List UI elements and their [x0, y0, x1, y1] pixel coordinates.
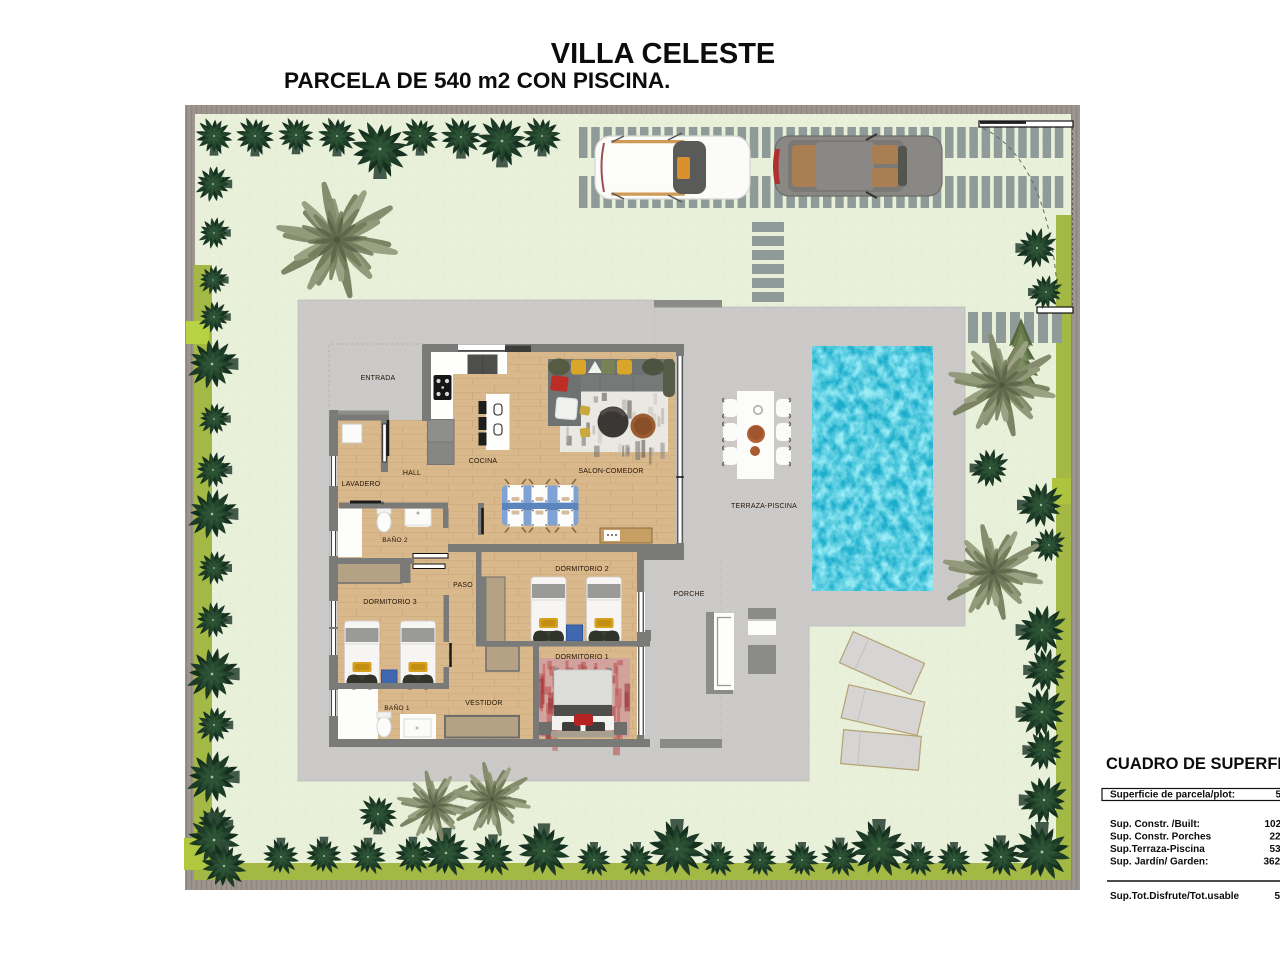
- svg-text:Superficie de parcela/plot:: Superficie de parcela/plot:: [1110, 790, 1235, 801]
- svg-text:PORCHE: PORCHE: [673, 591, 704, 598]
- svg-text:540,00 m2: 540,00 m2: [1276, 790, 1280, 801]
- svg-text:PASO: PASO: [453, 582, 473, 589]
- svg-text:HALL: HALL: [403, 470, 421, 477]
- svg-text:SALON-COMEDOR: SALON-COMEDOR: [578, 468, 643, 475]
- svg-text:ENTRADA: ENTRADA: [361, 375, 396, 382]
- svg-text:539,95 m2: 539,95 m2: [1275, 891, 1280, 902]
- svg-text:Sup. Constr. Porches: Sup. Constr. Porches: [1110, 832, 1212, 843]
- svg-text:Sup.Terraza-Piscina: Sup.Terraza-Piscina: [1110, 844, 1205, 855]
- svg-text:102,75 m2: 102,75 m2: [1265, 819, 1280, 830]
- svg-text:53,00 m2: 53,00 m2: [1270, 844, 1280, 855]
- svg-text:TERRAZA-PISCINA: TERRAZA-PISCINA: [731, 503, 797, 510]
- svg-text:PARCELA DE 540 m2 CON PISCINA.: PARCELA DE 540 m2 CON PISCINA.: [284, 68, 670, 93]
- svg-text:COCINA: COCINA: [469, 458, 498, 465]
- svg-text:DORMITORIO 3: DORMITORIO 3: [363, 599, 417, 606]
- svg-text:Sup.Tot.Disfrute/Tot.usable: Sup.Tot.Disfrute/Tot.usable: [1110, 891, 1240, 902]
- svg-text:Sup. Jardín/ Garden:: Sup. Jardín/ Garden:: [1110, 857, 1208, 868]
- svg-text:Sup. Constr. /Built:: Sup. Constr. /Built:: [1110, 819, 1200, 830]
- svg-text:DORMITORIO 2: DORMITORIO 2: [555, 566, 609, 573]
- svg-text:22,20 m2: 22,20 m2: [1270, 832, 1280, 843]
- svg-text:VESTIDOR: VESTIDOR: [465, 700, 502, 707]
- svg-text:LAVADERO: LAVADERO: [342, 481, 381, 488]
- svg-text:362,00 m2: 362,00 m2: [1264, 857, 1280, 868]
- svg-text:VILLA CELESTE: VILLA CELESTE: [551, 38, 776, 70]
- svg-text:BAÑO 1: BAÑO 1: [384, 703, 410, 712]
- svg-text:DORMITORIO 1: DORMITORIO 1: [555, 654, 609, 661]
- svg-text:CUADRO DE SUPERFICIES: CUADRO DE SUPERFICIES: [1106, 755, 1280, 773]
- svg-text:BAÑO 2: BAÑO 2: [382, 535, 408, 544]
